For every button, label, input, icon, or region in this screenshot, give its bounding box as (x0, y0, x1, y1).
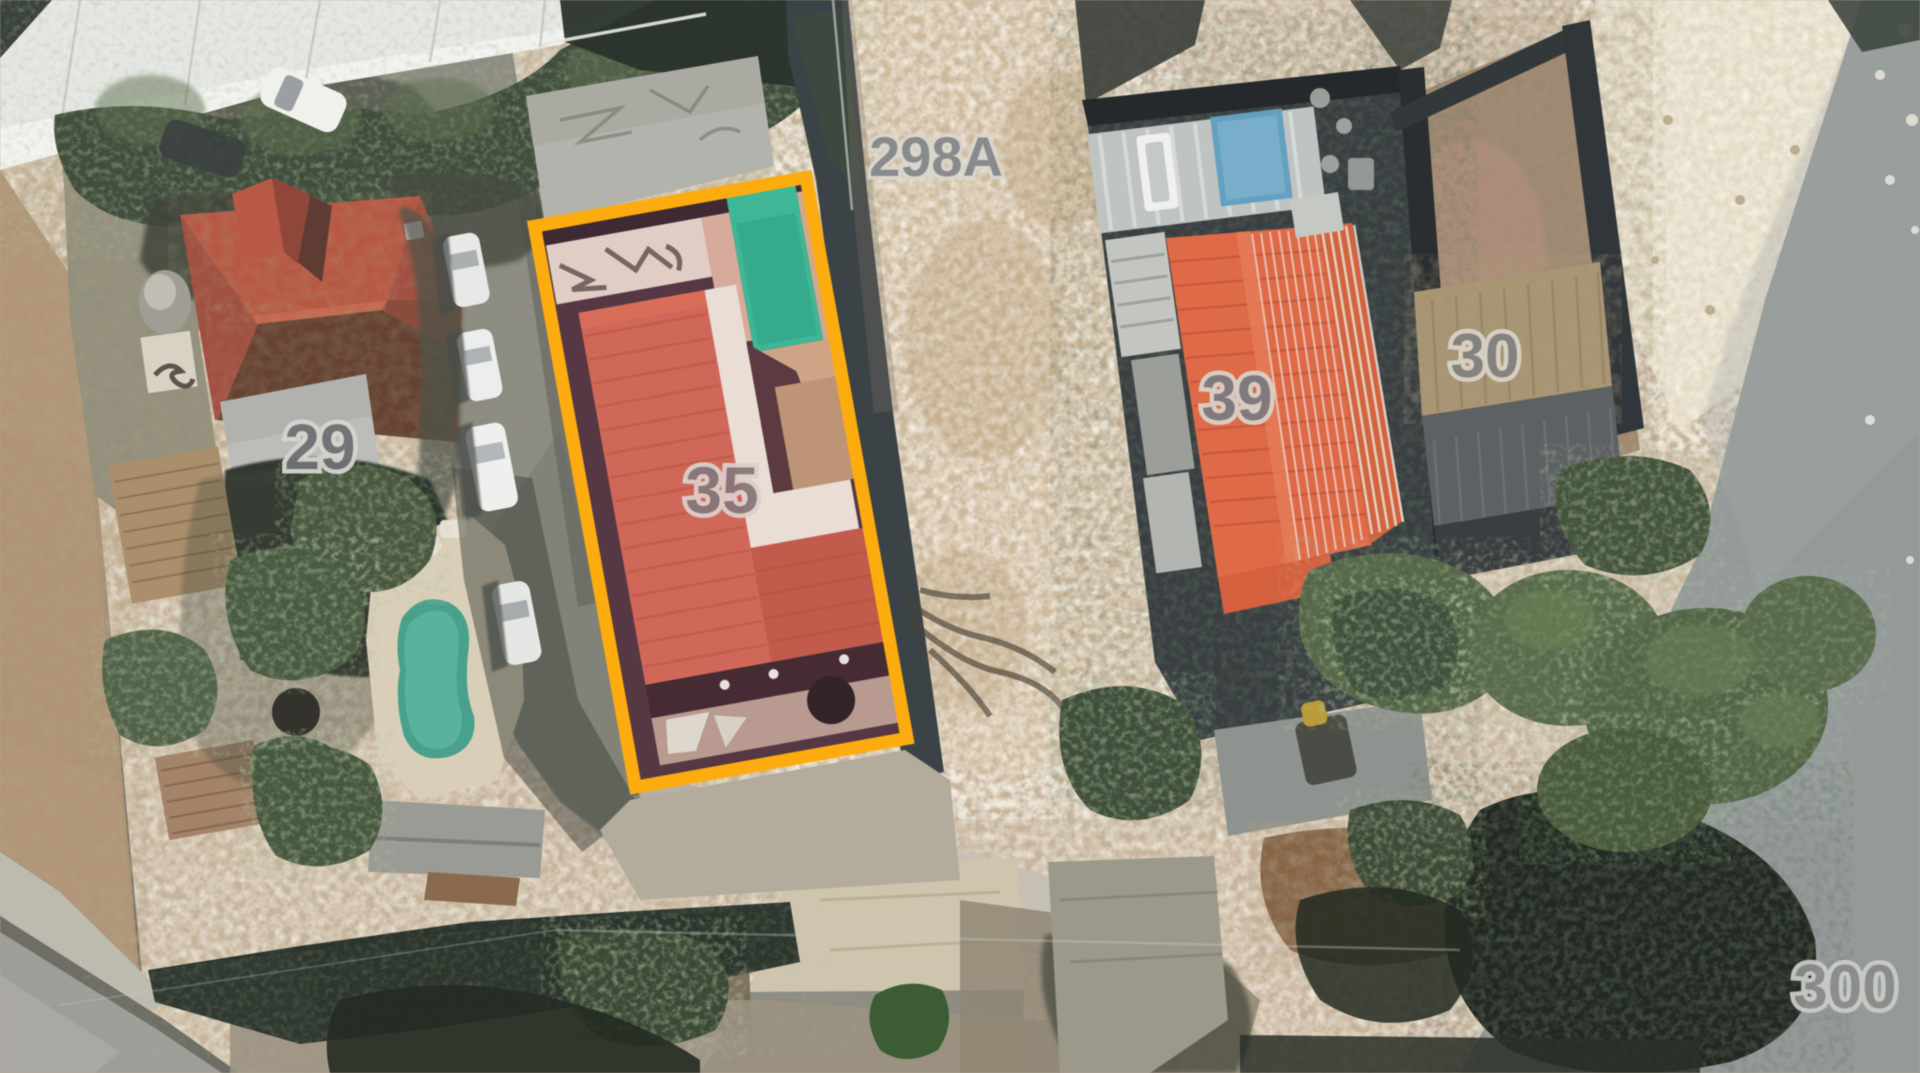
svg-text:298A: 298A (869, 125, 1003, 188)
svg-text:29: 29 (284, 411, 355, 483)
svg-text:35: 35 (685, 453, 758, 527)
svg-text:300: 300 (1793, 953, 1896, 1022)
svg-text:39: 39 (1201, 362, 1272, 434)
svg-text:30: 30 (1451, 322, 1520, 391)
